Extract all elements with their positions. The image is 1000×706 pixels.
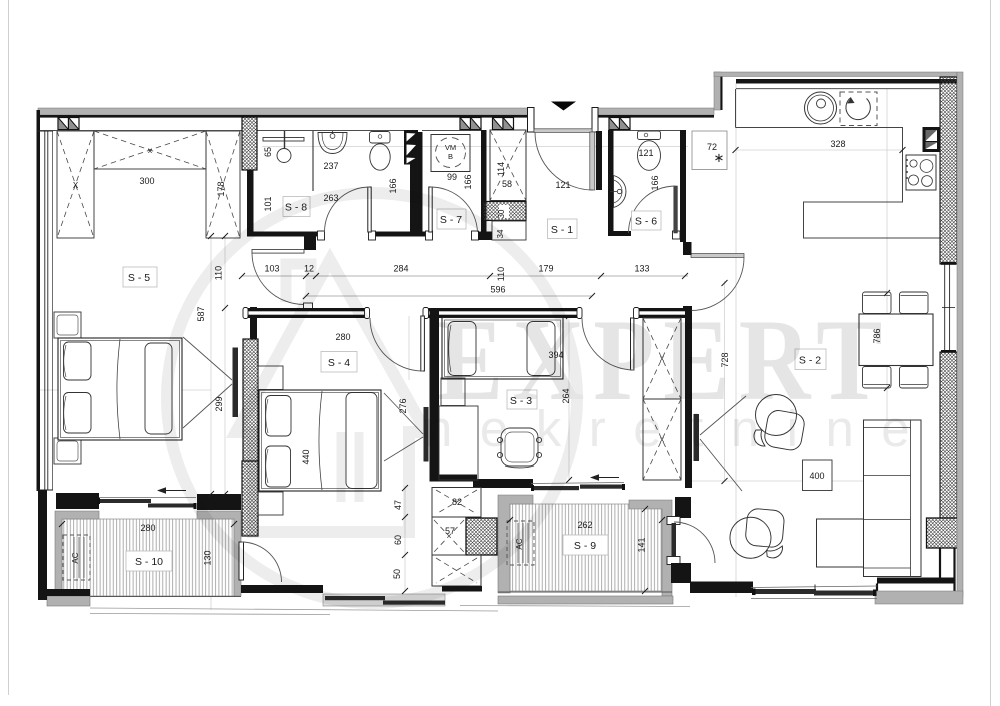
svg-text:65: 65 <box>263 147 273 157</box>
svg-text:S - 6: S - 6 <box>635 216 657 228</box>
svg-text:130: 130 <box>203 550 213 565</box>
svg-text:∗: ∗ <box>714 150 725 165</box>
svg-text:57: 57 <box>445 526 455 536</box>
svg-text:82: 82 <box>452 497 462 507</box>
svg-text:587: 587 <box>196 306 206 321</box>
svg-text:58: 58 <box>502 179 512 189</box>
svg-text:440: 440 <box>301 449 311 464</box>
svg-text:121: 121 <box>555 180 570 190</box>
svg-text:103: 103 <box>264 264 279 274</box>
svg-text:B: B <box>448 152 453 161</box>
svg-text:328: 328 <box>830 139 845 149</box>
svg-text:284: 284 <box>393 264 408 274</box>
svg-text:47: 47 <box>393 500 403 510</box>
svg-text:S - 10: S - 10 <box>135 556 163 568</box>
svg-text:280: 280 <box>335 332 350 342</box>
svg-text:X: X <box>73 181 79 190</box>
svg-text:166: 166 <box>650 175 660 190</box>
svg-text:101: 101 <box>263 196 273 211</box>
svg-text:S - 9: S - 9 <box>574 540 596 552</box>
svg-text:nekretnine: nekretnine <box>424 400 937 457</box>
svg-text:166: 166 <box>463 174 473 189</box>
svg-text:299: 299 <box>214 396 224 411</box>
svg-text:400: 400 <box>809 471 824 481</box>
svg-text:133: 133 <box>634 264 649 274</box>
svg-text:30: 30 <box>497 209 506 218</box>
svg-text:110: 110 <box>496 267 506 281</box>
svg-text:262: 262 <box>577 520 592 530</box>
svg-text:S - 4: S - 4 <box>328 357 350 369</box>
svg-text:S - 1: S - 1 <box>551 224 573 236</box>
svg-text:178: 178 <box>216 181 226 196</box>
svg-text:VM: VM <box>445 143 456 152</box>
svg-text:121: 121 <box>638 148 653 158</box>
svg-text:596: 596 <box>490 285 505 295</box>
svg-text:AC: AC <box>71 552 80 563</box>
svg-text:141: 141 <box>637 537 647 552</box>
svg-text:x: x <box>148 146 152 155</box>
svg-text:300: 300 <box>139 176 154 186</box>
svg-text:237: 237 <box>323 161 338 171</box>
svg-text:280: 280 <box>140 523 155 533</box>
svg-text:99: 99 <box>447 172 457 182</box>
svg-text:S - 5: S - 5 <box>128 272 150 284</box>
svg-text:114: 114 <box>496 162 506 176</box>
svg-text:50: 50 <box>392 569 402 579</box>
